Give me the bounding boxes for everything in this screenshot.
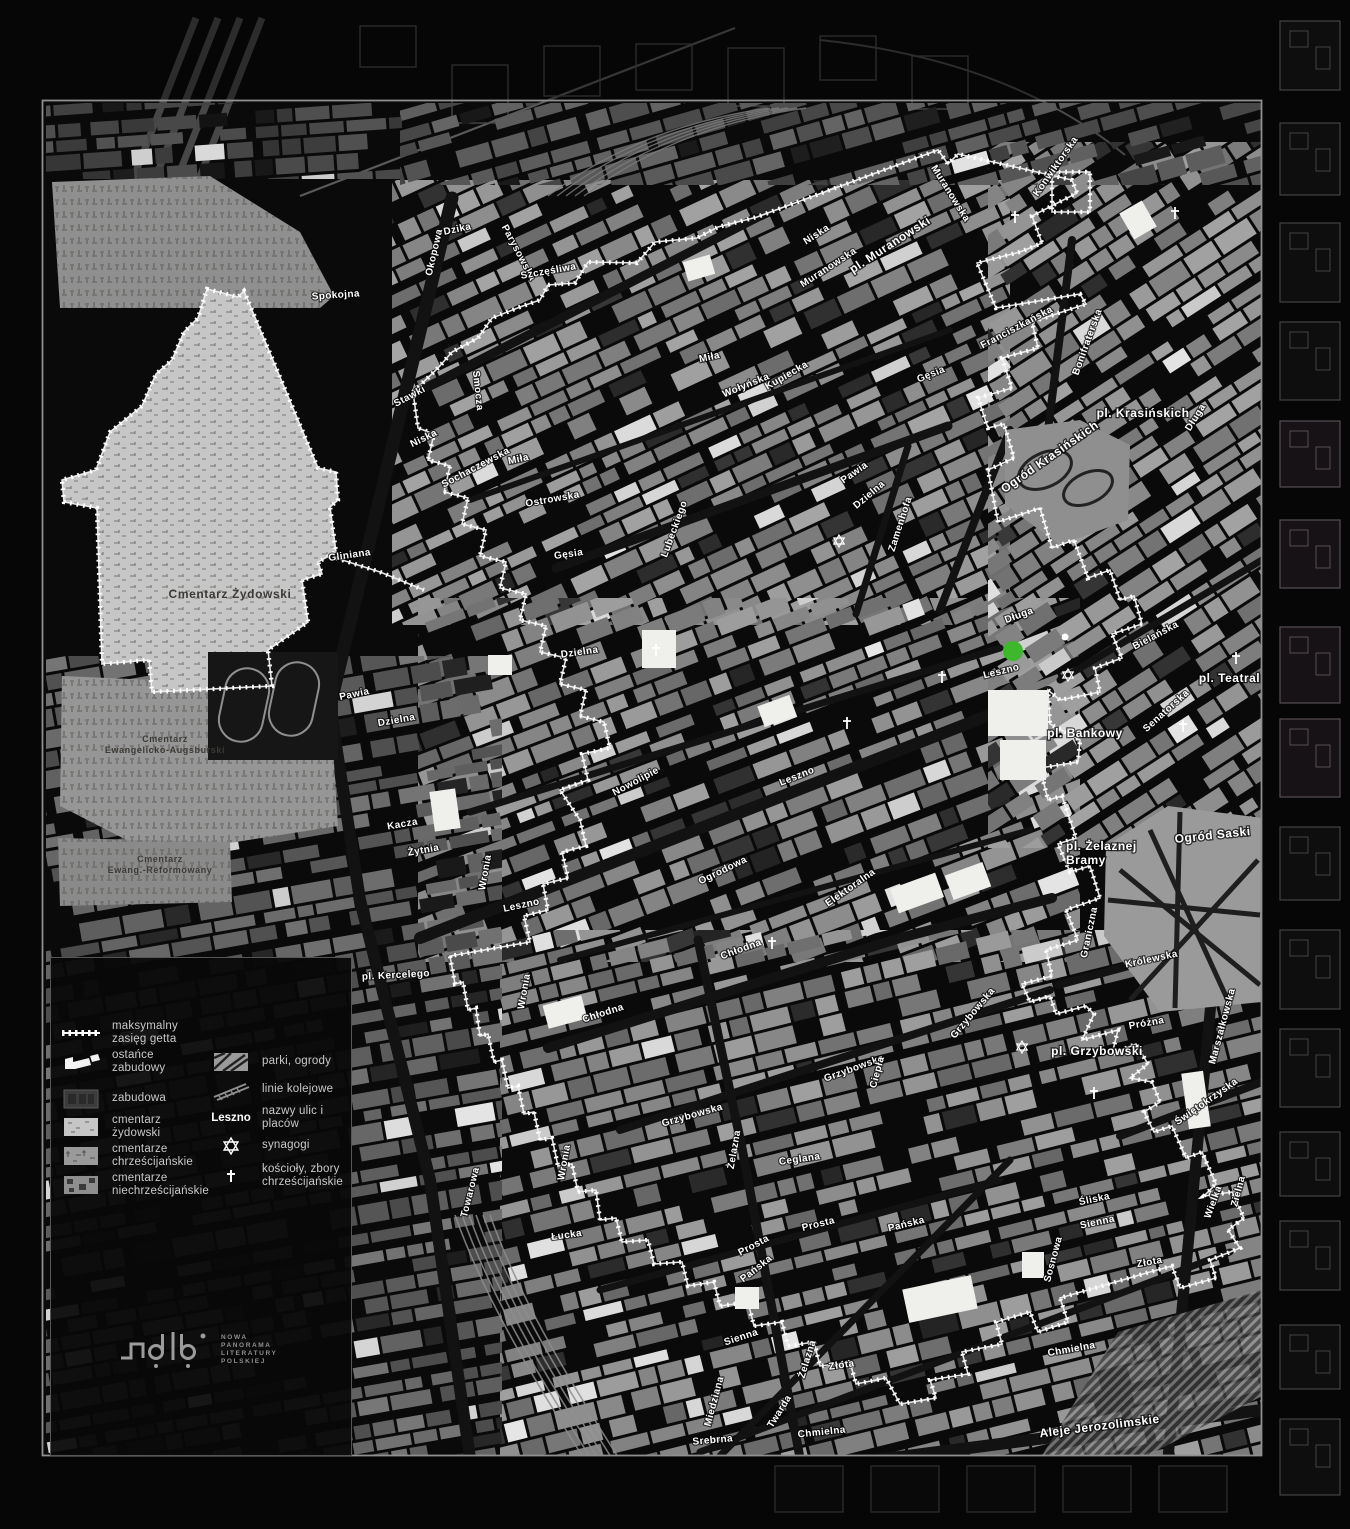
nplp-logo-text: NOWAPANORAMALITERATURYPOLSKIEJ: [221, 1334, 277, 1367]
white-dot: [1062, 634, 1069, 641]
map-legend: maksymalny zasięg gettaostańce zabudowyz…: [50, 957, 352, 1456]
place-label: Bramy: [1066, 853, 1106, 867]
area-label: Ewang.-Reformowany: [108, 865, 213, 875]
surviving-building: [642, 630, 676, 668]
surviving-building: [1000, 740, 1046, 780]
surviving-building: [429, 788, 460, 831]
cross-icon: [227, 1170, 235, 1182]
christian-cemeteries-icon: [59, 1143, 103, 1169]
surviving-buildings-icon: [59, 1049, 103, 1075]
legend-label: cmentarz żydowski: [112, 1114, 209, 1140]
place-label: pl. Żelaznej: [1066, 838, 1137, 853]
place-label: pl. Bankowy: [1047, 726, 1123, 740]
ghetto-map-page: DzikaOkopowaSpokojnaParysowskaSzczęśliwa…: [0, 0, 1350, 1529]
legend-item-parki-ogrody: parki, ogrody: [209, 1049, 349, 1075]
area-label: Cmentarz: [137, 854, 183, 864]
surviving-building: [735, 1287, 759, 1309]
star-of-david-icon: [224, 1138, 238, 1150]
legend-label: cmentarze niechrześcijańskie: [112, 1172, 209, 1198]
legend-item-ghetto-extent: maksymalny zasięg getta: [59, 1020, 209, 1046]
legend-label: zabudowa: [112, 1092, 166, 1105]
legend-label: nazwy ulic i placów: [262, 1105, 349, 1131]
place-label: pl. Grzybowski: [1051, 1044, 1143, 1058]
legend-item-linie-kolejowe: linie kolejowe: [209, 1077, 349, 1103]
legend-label: cmentarze chrześcijańskie: [112, 1143, 209, 1169]
location-marker-green[interactable]: [1003, 641, 1023, 661]
place-label: pl. Krasińskich: [1097, 406, 1190, 420]
legend-label: linie kolejowe: [262, 1083, 333, 1096]
surviving-building: [988, 690, 1048, 736]
legend-label: ostańce zabudowy: [112, 1049, 209, 1075]
legend-label: kościoły, zbory chrześcijańskie: [262, 1163, 349, 1189]
legend-item-nazwy-ulic: Lesznonazwy ulic i placów: [209, 1105, 349, 1131]
legend-label: maksymalny zasięg getta: [112, 1020, 209, 1046]
legend-item-zabudowa: zabudowa: [59, 1086, 209, 1112]
area-label: Ewangelicko-Augsburski: [105, 745, 225, 755]
legend-item-cmentarz-zydowski: cmentarz żydowski: [59, 1114, 209, 1140]
nplp-logo: NOWAPANORAMALITERATURYPOLSKIEJ: [115, 1324, 277, 1376]
area-label: Cmentarz: [142, 734, 188, 744]
nplp-logo-glyphs: [115, 1324, 211, 1376]
buildings-icon: [59, 1086, 103, 1112]
legend-item-koscioly: kościoły, zbory chrześcijańskie: [209, 1163, 349, 1189]
nonchristian-cemeteries-icon: [59, 1172, 103, 1198]
jewish-cemetery-icon: [59, 1114, 103, 1140]
parks-icon: [209, 1049, 253, 1075]
cross-icon: [209, 1163, 253, 1189]
surviving-building: [488, 655, 512, 675]
legend-item-synagogi: synagogi: [209, 1133, 349, 1159]
area-label: Cmentarz Żydowski: [169, 586, 292, 601]
legend-item-cmentarze-chrzescijanskie: cmentarze chrześcijańskie: [59, 1143, 209, 1169]
star-of-david-icon: [209, 1133, 253, 1159]
legend-item-cmentarze-niechrzescijanskie: cmentarze niechrześcijańskie: [59, 1172, 209, 1198]
legend-item-ostance: ostańce zabudowy: [59, 1049, 209, 1075]
railway-icon: [209, 1077, 253, 1103]
legend-label: synagogi: [262, 1139, 310, 1152]
legend-label: parki, ogrody: [262, 1055, 331, 1068]
ghetto-extent-icon: [59, 1020, 103, 1046]
surviving-building: [1022, 1252, 1044, 1278]
legend-sample-street: Leszno: [211, 1112, 251, 1124]
